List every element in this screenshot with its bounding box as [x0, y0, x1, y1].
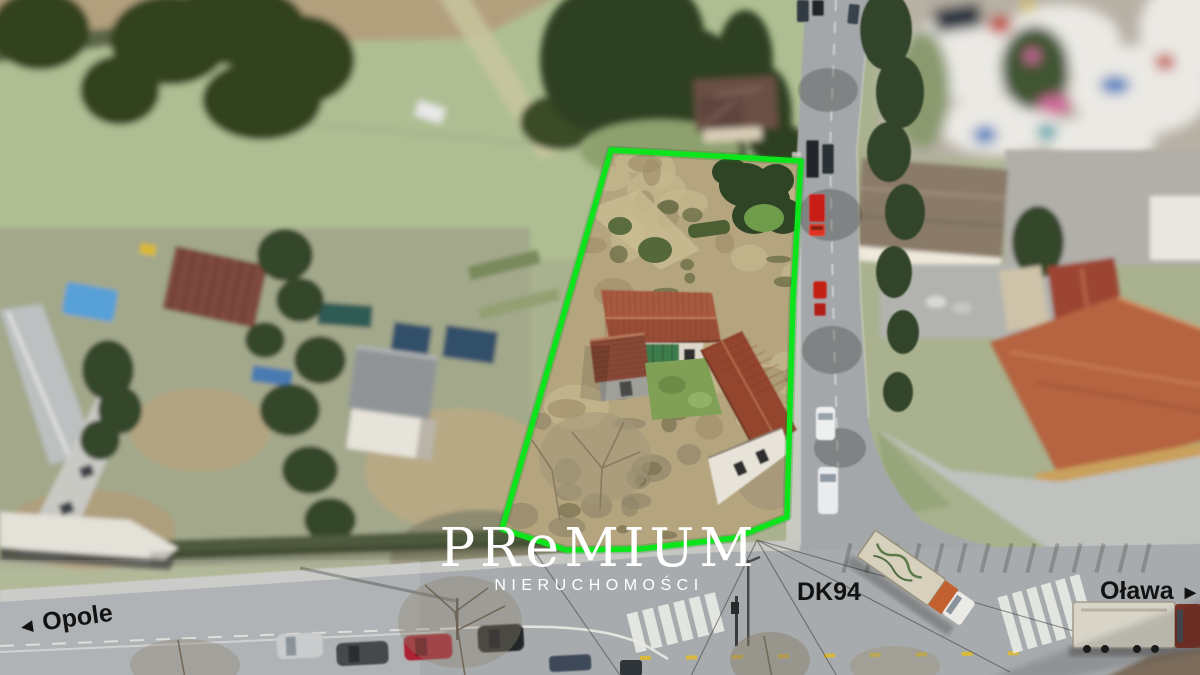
listing-photo: PReMIUM NIERUCHOMOŚCI ◄Opole DK94 Oława► [0, 0, 1200, 675]
aerial-photo: PReMIUM NIERUCHOMOŚCI ◄Opole DK94 Oława► [0, 0, 1200, 675]
cream-building [999, 266, 1049, 331]
direction-label-olawa: Oława► [1100, 577, 1200, 605]
white-building-edge [1150, 196, 1200, 260]
dark-suv [336, 641, 389, 667]
red-car-trailer [813, 281, 827, 316]
route-label-dk94: DK94 [797, 578, 861, 606]
dark-car-partial [549, 654, 592, 672]
dark-truck [806, 140, 819, 178]
white-car [816, 407, 835, 440]
bazaar-market [880, 0, 1200, 165]
teal-shed [317, 302, 372, 328]
green-doors [644, 344, 679, 363]
brand-wordmark: PReMIUM [439, 512, 758, 580]
brand-subtitle: NIERUCHOMOŚCI [494, 575, 703, 594]
red-semi-truck [809, 194, 825, 236]
white-van [818, 467, 838, 514]
silver-car [276, 632, 323, 659]
